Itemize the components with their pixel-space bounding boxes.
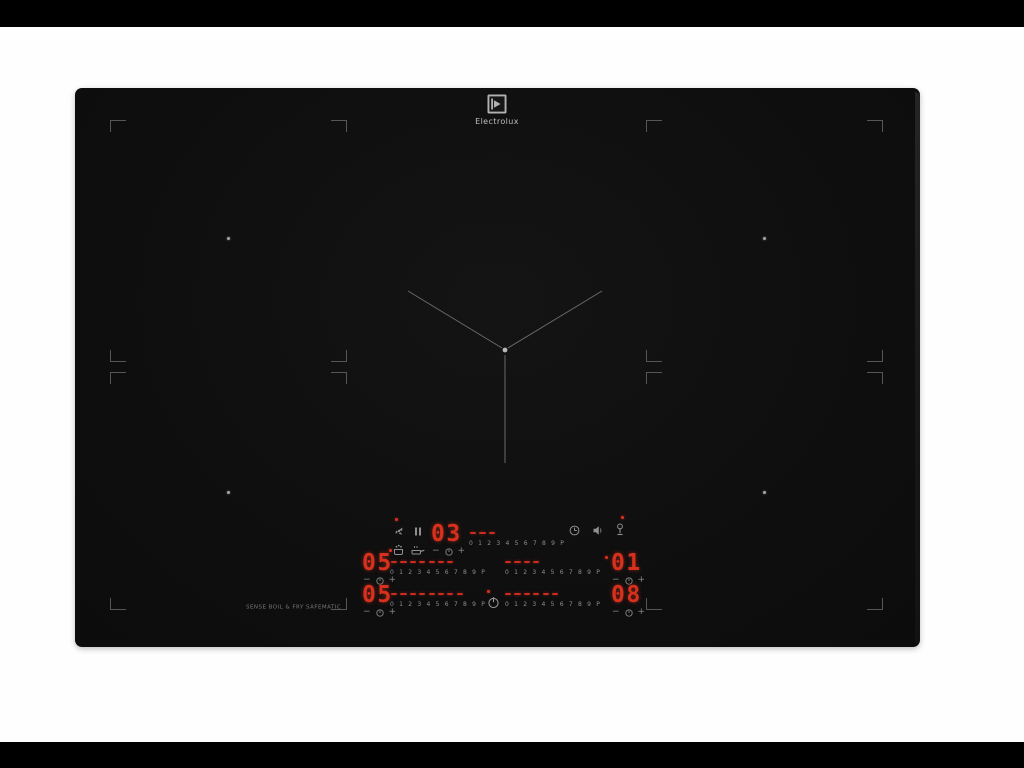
bottom-letterbox-bar [0, 742, 1024, 768]
slider-dash [524, 561, 530, 563]
slider-dash [447, 593, 453, 595]
slider-tick-label[interactable]: 6 [524, 540, 528, 547]
slider-dash [552, 593, 558, 595]
slider-tick-label[interactable]: 9 [587, 601, 591, 608]
plus-button[interactable]: + [389, 608, 397, 617]
slider-dash [438, 561, 444, 563]
slider-tick-label[interactable]: 5 [551, 601, 555, 608]
slider-tick-label[interactable]: 2 [523, 569, 527, 576]
zone-corner-icon [646, 372, 662, 384]
power-button-icon[interactable] [487, 596, 500, 609]
indicator-dot [487, 590, 490, 593]
power-slider-bottom-left[interactable]: 0123456789P [390, 601, 485, 608]
slider-dash [410, 593, 416, 595]
slider-dash [419, 561, 425, 563]
zone-corner-icon [110, 598, 126, 610]
slider-tick-label[interactable]: 2 [523, 601, 527, 608]
timer-display: 03 [431, 524, 462, 544]
slider-dash [470, 532, 476, 534]
slider-tick-label[interactable]: 9 [472, 569, 476, 576]
power-display-middle-left: 05 [362, 553, 393, 573]
zone-corner-icon [646, 350, 662, 362]
slider-dash [514, 593, 520, 595]
slider-tick-label[interactable]: P [596, 601, 600, 608]
slider-dash [505, 593, 511, 595]
minus-button[interactable]: − [612, 608, 620, 617]
slider-tick-label[interactable]: 8 [463, 601, 467, 608]
slider-tick-label[interactable]: 7 [454, 601, 458, 608]
induction-hob: Electrolux [75, 88, 920, 647]
zone-corner-icon [646, 120, 662, 132]
senseboil-pot-icon[interactable] [392, 544, 405, 556]
electrolux-logo: Electrolux [457, 94, 537, 126]
timer-clock-icon[interactable] [569, 525, 580, 536]
slider-tick-label[interactable]: 6 [445, 569, 449, 576]
slider-tick-label[interactable]: 1 [399, 569, 403, 576]
slider-tick-label[interactable]: 3 [496, 540, 500, 547]
slider-dash [410, 561, 416, 563]
cooking-zone-right-rear [646, 120, 883, 362]
slider-tick-label[interactable]: 3 [532, 601, 536, 608]
slider-tick-label[interactable]: 0 [505, 601, 509, 608]
slider-dash [514, 561, 520, 563]
slider-tick-label[interactable]: 3 [417, 569, 421, 576]
slider-tick-label[interactable]: 8 [578, 601, 582, 608]
slider-dash [524, 593, 530, 595]
slider-tick-label[interactable]: 4 [427, 569, 431, 576]
slider-dash [429, 593, 435, 595]
hob-edge-highlight [915, 92, 920, 643]
slider-tick-label[interactable]: P [481, 601, 485, 608]
zone-corner-icon [867, 120, 883, 132]
slider-tick-label[interactable]: 6 [560, 601, 564, 608]
slider-dash [447, 561, 453, 563]
slider-tick-label[interactable]: 5 [551, 569, 555, 576]
pause-icon[interactable] [414, 527, 422, 536]
feature-print-label: SENSE BOIL & FRY SAFEMATIC [246, 604, 341, 610]
slider-tick-label[interactable]: P [596, 569, 600, 576]
slider-tick-label[interactable]: 9 [587, 569, 591, 576]
slider-tick-label[interactable]: 3 [532, 569, 536, 576]
slider-tick-label[interactable]: 3 [417, 601, 421, 608]
minus-button[interactable]: − [432, 547, 440, 556]
indicator-dot [605, 556, 608, 559]
center-zone-y-marking [375, 268, 635, 468]
minus-button[interactable]: − [363, 608, 371, 617]
clock-mini-icon [445, 548, 453, 556]
slider-tick-label[interactable]: 0 [469, 540, 473, 547]
slider-dash [457, 593, 463, 595]
electrolux-mark-icon [487, 94, 507, 114]
slider-tick-label[interactable]: 9 [472, 601, 476, 608]
power-slider-level-middle-left [391, 561, 453, 563]
plus-button[interactable]: + [458, 547, 466, 556]
zone-adjust-control[interactable]: − + [363, 608, 396, 617]
power-slider-level-middle-right [505, 561, 539, 563]
zone-corner-icon [867, 372, 883, 384]
slider-tick-label[interactable]: 5 [436, 569, 440, 576]
slider-tick-label[interactable]: 4 [542, 569, 546, 576]
slider-tick-label[interactable]: 5 [515, 540, 519, 547]
zone-corner-icon [867, 598, 883, 610]
zone-corner-icon [110, 120, 126, 132]
sensefry-pan-icon[interactable] [411, 544, 425, 556]
slider-tick-label[interactable]: 4 [506, 540, 510, 547]
power-slider-bottom-right[interactable]: 0123456789P [505, 601, 600, 608]
slider-tick-label[interactable]: 6 [445, 601, 449, 608]
slider-tick-label[interactable]: 1 [399, 601, 403, 608]
power-slider-middle-right[interactable]: 0123456789P [505, 569, 600, 576]
indicator-dot [389, 549, 392, 552]
zone-corner-icon [110, 350, 126, 362]
power-display-bottom-left: 05 [362, 585, 393, 605]
slider-dash [533, 593, 539, 595]
slider-dash [419, 593, 425, 595]
slider-tick-label[interactable]: 0 [505, 569, 509, 576]
slider-tick-label[interactable]: 7 [533, 540, 537, 547]
slider-dash [505, 561, 511, 563]
slider-tick-label[interactable]: 2 [408, 569, 412, 576]
slider-tick-label[interactable]: 0 [390, 569, 394, 576]
zone-corner-icon [646, 598, 662, 610]
slider-dash [391, 593, 397, 595]
slider-tick-label[interactable]: 8 [463, 569, 467, 576]
hob2hood-fan-icon[interactable] [393, 525, 405, 537]
zone-corner-icon [867, 350, 883, 362]
zone-corner-icon [110, 372, 126, 384]
zone-corner-icon [331, 350, 347, 362]
slider-tick-label[interactable]: 1 [514, 601, 518, 608]
slider-tick-label[interactable]: 0 [390, 601, 394, 608]
slider-dash [438, 593, 444, 595]
slider-tick-label[interactable]: 2 [487, 540, 491, 547]
top-letterbox-bar [0, 0, 1024, 27]
slider-tick-label[interactable]: 2 [408, 601, 412, 608]
timer-slider-level [470, 532, 495, 534]
child-lock-key-icon[interactable] [614, 523, 626, 536]
zone-corner-icon [331, 372, 347, 384]
plus-button[interactable]: + [638, 608, 646, 617]
power-display-bottom-right: 08 [611, 585, 642, 605]
slider-dash [543, 593, 549, 595]
cooking-zone-left-rear [110, 120, 347, 362]
slider-tick-label[interactable]: 7 [569, 601, 573, 608]
power-slider-middle-left[interactable]: 0123456789P [390, 569, 485, 576]
slider-tick-label[interactable]: P [481, 569, 485, 576]
power-slider-level-bottom-right [505, 593, 558, 595]
slider-dash [391, 561, 397, 563]
slider-tick-label[interactable]: 8 [578, 569, 582, 576]
slider-tick-label[interactable]: 6 [560, 569, 564, 576]
slider-tick-label[interactable]: 9 [551, 540, 555, 547]
zone-adjust-control[interactable]: − + [612, 608, 645, 617]
indicator-dot [395, 518, 398, 521]
slider-tick-label[interactable]: 5 [436, 601, 440, 608]
slider-tick-label[interactable]: 1 [478, 540, 482, 547]
zone-center-dot [227, 491, 230, 494]
zone-center-dot [763, 237, 766, 240]
power-display-middle-right: 01 [611, 553, 642, 573]
slider-tick-label[interactable]: 8 [542, 540, 546, 547]
timer-slider[interactable]: 0123456789P [469, 540, 564, 547]
timer-adjust-control[interactable]: − + [432, 547, 465, 556]
electrolux-wordmark: Electrolux [457, 117, 537, 126]
slider-tick-label[interactable]: 4 [427, 601, 431, 608]
slider-dash [489, 532, 495, 534]
slider-tick-label[interactable]: 4 [542, 601, 546, 608]
slider-tick-label[interactable]: 1 [514, 569, 518, 576]
clock-mini-icon [376, 609, 384, 617]
zone-center-dot [227, 237, 230, 240]
power-slider-level-bottom-left [391, 593, 463, 595]
clock-mini-icon [625, 609, 633, 617]
zone-corner-icon [331, 120, 347, 132]
slider-tick-label[interactable]: 7 [569, 569, 573, 576]
slider-dash [429, 561, 435, 563]
slider-dash [400, 593, 406, 595]
zone-center-dot [763, 491, 766, 494]
indicator-dot [621, 516, 624, 519]
slider-dash [400, 561, 406, 563]
slider-dash [533, 561, 539, 563]
slider-dash [479, 532, 485, 534]
slider-tick-label[interactable]: P [560, 540, 564, 547]
sound-icon[interactable] [592, 525, 603, 536]
slider-tick-label[interactable]: 7 [454, 569, 458, 576]
